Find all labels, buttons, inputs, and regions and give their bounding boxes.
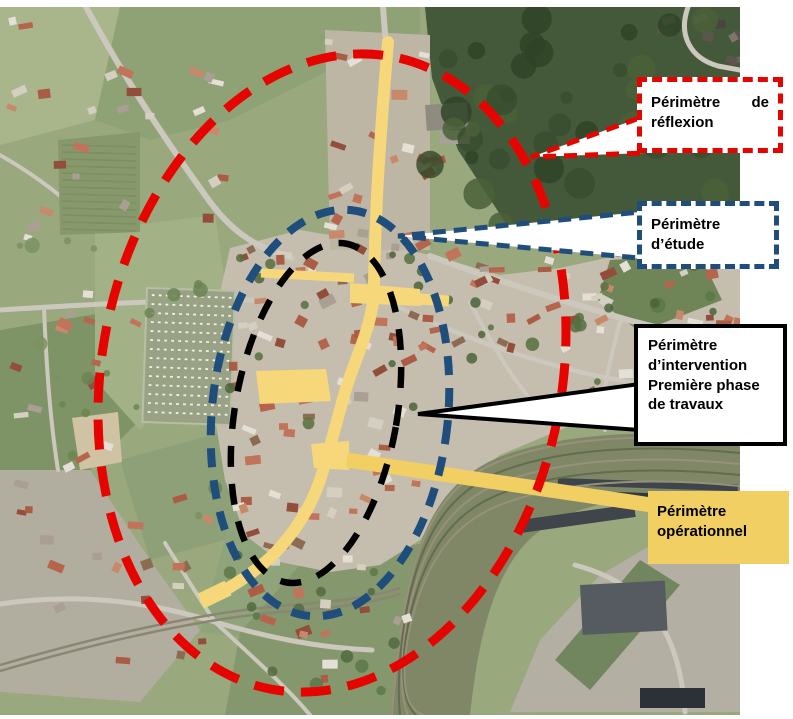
legend-perimetre-reflexion: Périmètre de réflexion [637,77,783,153]
legend-perimetre-intervention: Périmètre d’intervention Première phase … [634,324,787,446]
legend-operationnel-label: Périmètre opérationnel [657,503,747,540]
screenshot-root: Périmètre de réflexion Périmètre d’étude… [0,0,793,719]
legend-etude-label: Périmètre d’étude [651,216,720,253]
legend-perimetre-operationnel: Périmètre opérationnel [648,491,789,564]
legend-intervention-label: Périmètre d’intervention Première phase … [648,337,760,413]
legend-reflexion-label: Périmètre de réflexion [651,94,769,131]
legend-perimetre-etude: Périmètre d’étude [637,201,779,269]
allotment-gardens [58,132,140,235]
